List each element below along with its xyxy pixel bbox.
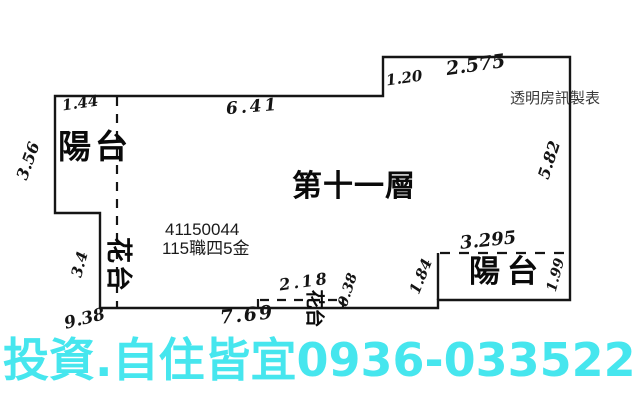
room-balcony-left: 陽台 [58, 130, 132, 163]
listing-code: 115職四5金 [162, 240, 250, 257]
floorplan-canvas: 1.44 6.41 1.20 2.575 透明房訊製表 陽台 3.56 花台 3… [0, 0, 640, 400]
room-flowerbed-left: 花台 [105, 237, 131, 293]
listing-id: 41150044 [165, 221, 239, 238]
floor-title: 第十一層 [292, 172, 416, 202]
dim-top: 6.41 [225, 97, 280, 119]
maker-caption: 透明房訊製表 [510, 91, 600, 106]
room-balcony-right: 陽台 [469, 257, 545, 288]
room-flowerbed-bottom: 花台 [305, 289, 324, 327]
ad-text: 投資.自住皆宜0936-033522 [3, 337, 636, 383]
